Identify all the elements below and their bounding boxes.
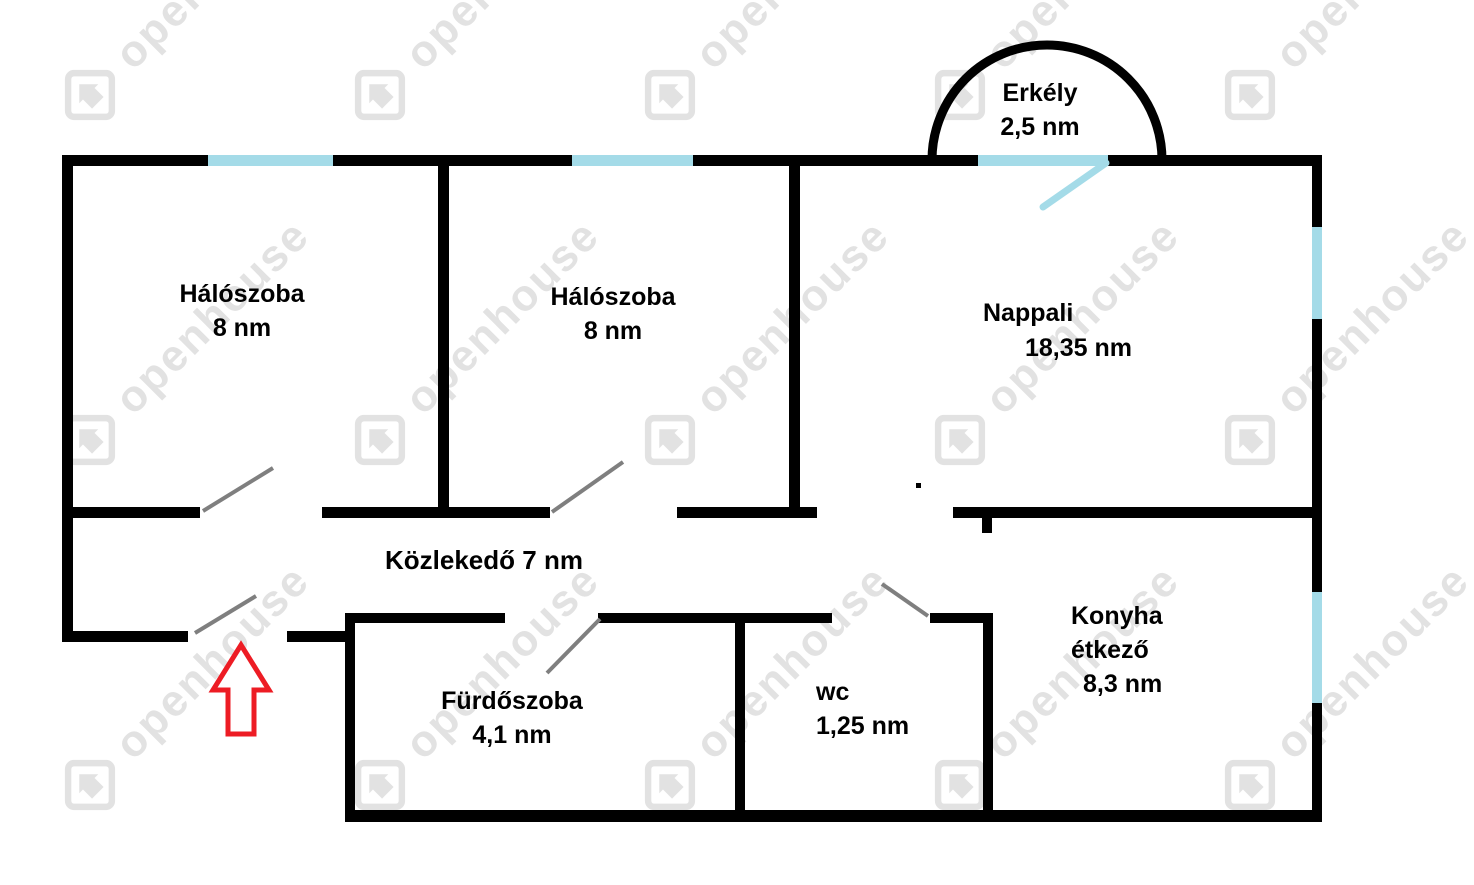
label-bathroom: Fürdőszoba 4,1 nm <box>441 684 583 752</box>
wall-bottom <box>345 810 1322 822</box>
watermark: openhouse <box>41 203 327 489</box>
watermark-text: openhouse <box>976 0 1190 79</box>
watermark-text: openhouse <box>1266 555 1474 769</box>
watermark-text: openhouse <box>396 0 610 79</box>
wall-bathroom-left <box>345 613 355 822</box>
watermark-text: openhouse <box>106 0 320 79</box>
label-kitchen: Konyha étkező 8,3 nm <box>1071 599 1163 701</box>
wall-bathroom-wc-divider <box>735 613 745 810</box>
room-area: 1,25 nm <box>816 709 909 743</box>
room-name: Erkély <box>1000 76 1079 110</box>
label-bedroom1: Hálószoba 8 nm <box>179 277 304 345</box>
wall-bedroom2-living-divider <box>789 155 800 518</box>
watermark: openhouse <box>621 0 907 144</box>
window-kitchen-right <box>1312 592 1322 703</box>
wall-hallway-b <box>322 507 550 518</box>
room-name: Közlekedő <box>385 545 515 575</box>
room-name: Fürdőszoba <box>441 684 583 718</box>
watermark-text: openhouse <box>106 555 320 769</box>
label-wc: wc 1,25 nm <box>816 675 909 743</box>
window-living-right <box>1312 227 1322 319</box>
room-area: 18,35 nm <box>1025 331 1132 365</box>
watermark: openhouse <box>1201 548 1474 834</box>
balcony-door <box>978 155 1108 166</box>
wall-bathroom-top-left <box>347 613 505 623</box>
wall-hallway-c <box>677 507 817 518</box>
watermark-text: openhouse <box>686 0 900 79</box>
window-bedroom2 <box>572 155 693 166</box>
watermark: openhouse <box>1201 0 1474 144</box>
wall-bedroom1-bedroom2-divider <box>438 155 449 518</box>
room-name: Nappali <box>983 296 1073 330</box>
room-name: Hálószoba <box>179 277 304 311</box>
label-living-name: Nappali <box>983 296 1073 330</box>
label-hallway: Közlekedő 7 nm <box>385 543 583 577</box>
label-balcony: Erkély 2,5 nm <box>1000 76 1079 144</box>
watermark: openhouse <box>41 0 327 144</box>
wall-wc-right <box>983 613 993 810</box>
watermark: openhouse <box>41 548 327 834</box>
room-area: 8 nm <box>550 314 675 348</box>
wall-entry-left <box>62 631 188 642</box>
room-name: étkező <box>1071 633 1163 667</box>
label-bedroom2: Hálószoba 8 nm <box>550 280 675 348</box>
wall-hallway-a <box>62 507 200 518</box>
room-name: wc <box>816 675 909 709</box>
room-name: Hálószoba <box>550 280 675 314</box>
wall-living-kitchen-bottom <box>953 507 1322 518</box>
label-living-area: 18,35 nm <box>1025 331 1132 365</box>
room-area: 7 nm <box>522 545 583 575</box>
wall-kitchen-stub <box>982 518 992 533</box>
room-area: 4,1 nm <box>441 718 583 752</box>
wall-left <box>62 155 73 642</box>
wall-bathroom-wc-top <box>598 613 832 623</box>
window-bedroom1 <box>208 155 333 166</box>
room-name: Konyha <box>1071 599 1163 633</box>
watermark: openhouse <box>331 0 617 144</box>
floor-plan: openhouseopenhouseopenhouseopenhouseopen… <box>0 0 1474 885</box>
room-area: 2,5 nm <box>1000 110 1079 144</box>
watermark: openhouse <box>1201 203 1474 489</box>
watermark-text: openhouse <box>1266 0 1474 79</box>
room-area: 8,3 nm <box>1071 667 1163 701</box>
watermark-text: openhouse <box>1266 210 1474 424</box>
room-area: 8 nm <box>179 311 304 345</box>
